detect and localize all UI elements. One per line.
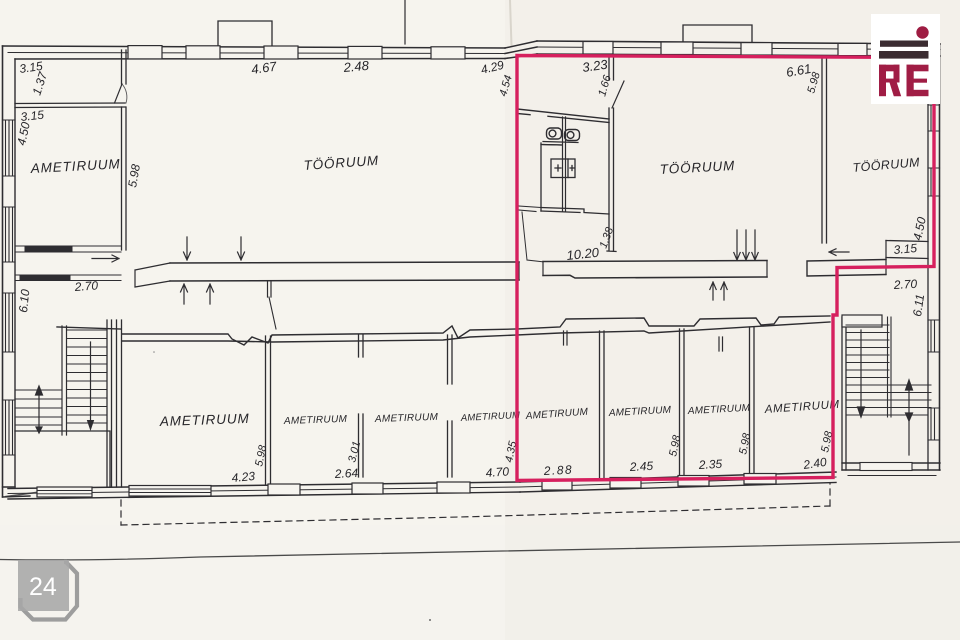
svg-text:2.88: 2.88 <box>542 462 573 478</box>
svg-text:AMETIRUUM: AMETIRUUM <box>283 414 348 427</box>
svg-text:2.70: 2.70 <box>73 278 99 294</box>
svg-text:2.45: 2.45 <box>628 459 653 474</box>
svg-text:2.48: 2.48 <box>342 58 370 75</box>
svg-text:4.23: 4.23 <box>231 469 256 485</box>
svg-text:2.64: 2.64 <box>333 466 358 481</box>
svg-text:AMETIRUUM: AMETIRUUM <box>374 412 439 425</box>
svg-text:24: 24 <box>29 573 57 601</box>
svg-text:3.15: 3.15 <box>20 108 45 124</box>
svg-text:6.10: 6.10 <box>16 288 32 313</box>
svg-text:AMETIRUUM: AMETIRUUM <box>159 411 250 429</box>
svg-text:2.35: 2.35 <box>697 457 722 472</box>
svg-text:4.70: 4.70 <box>485 464 510 480</box>
svg-text:3.15: 3.15 <box>893 241 918 257</box>
svg-text:2.70: 2.70 <box>892 277 917 292</box>
